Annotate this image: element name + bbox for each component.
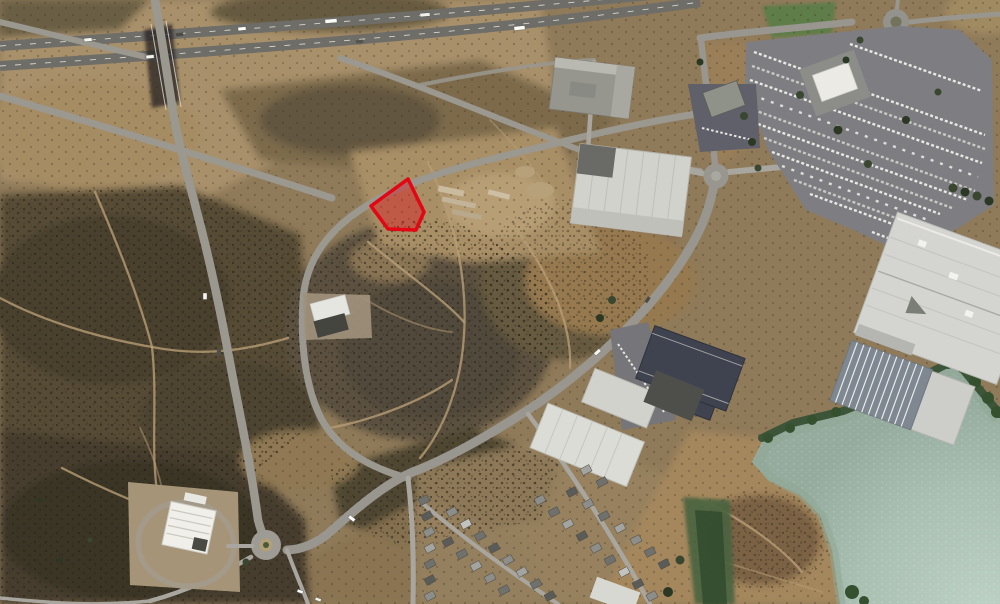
warehouse-building <box>571 144 692 237</box>
roundabout-south <box>251 530 281 560</box>
satellite-image <box>0 0 1000 604</box>
satellite-map-canvas[interactable] <box>0 0 1000 604</box>
depot-building <box>303 293 372 340</box>
fuel-canopy <box>162 501 216 554</box>
service-station <box>128 482 252 592</box>
roundabout-commercial <box>704 164 729 189</box>
truck <box>325 18 337 23</box>
industrial-building <box>549 57 635 118</box>
